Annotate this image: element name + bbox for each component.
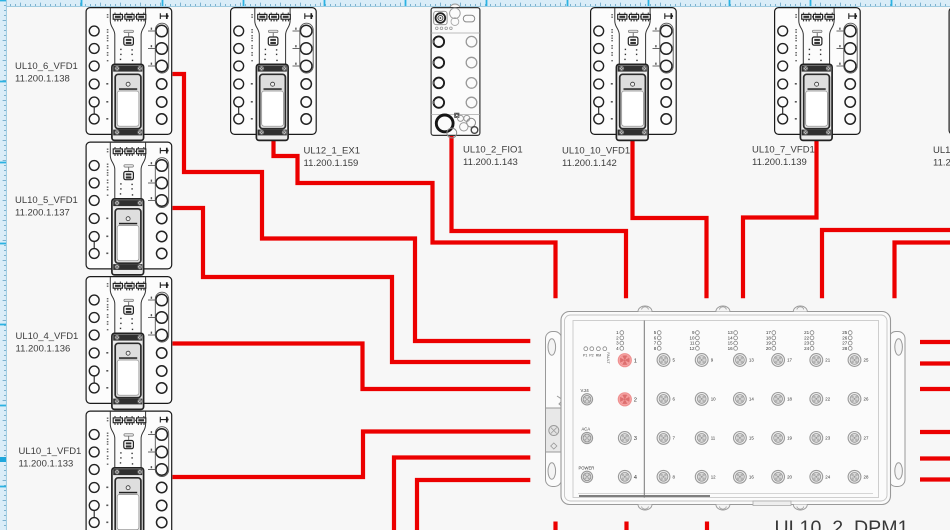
svg-text:20: 20 xyxy=(787,475,792,480)
svg-text:25: 25 xyxy=(842,330,848,335)
svg-text:19: 19 xyxy=(787,436,792,441)
svg-text:23: 23 xyxy=(804,341,810,346)
svg-text:21: 21 xyxy=(804,330,810,335)
svg-text:24: 24 xyxy=(825,475,830,480)
svg-text:UL12_1_EX1: UL12_1_EX1 xyxy=(304,146,361,157)
svg-text:11.200.1.138: 11.200.1.138 xyxy=(15,74,70,85)
svg-text:FAULT: FAULT xyxy=(606,352,610,364)
svg-text:11.200.1.137: 11.200.1.137 xyxy=(15,208,70,219)
svg-text:ACA: ACA xyxy=(582,427,591,432)
svg-text:P1: P1 xyxy=(583,353,587,357)
svg-text:14: 14 xyxy=(749,397,754,402)
svg-text:23: 23 xyxy=(825,436,830,441)
svg-text:UL10_1_VFD1: UL10_1_VFD1 xyxy=(19,446,82,457)
svg-text:1: 1 xyxy=(634,358,637,364)
svg-text:26: 26 xyxy=(864,397,869,402)
svg-text:V.24: V.24 xyxy=(581,388,590,393)
svg-text:15: 15 xyxy=(728,341,734,346)
svg-text:UL10_6_VFD1: UL10_6_VFD1 xyxy=(15,61,78,72)
svg-text:18: 18 xyxy=(766,335,772,340)
svg-text:17: 17 xyxy=(787,358,792,363)
svg-text:11.200.1.140: 11.200.1.140 xyxy=(933,158,950,169)
svg-text:11.200.1.142: 11.200.1.142 xyxy=(562,158,617,169)
svg-text:11: 11 xyxy=(711,436,716,441)
svg-text:POWER: POWER xyxy=(579,465,595,470)
svg-text:P2: P2 xyxy=(589,353,593,357)
svg-text:28: 28 xyxy=(864,475,869,480)
svg-text:15: 15 xyxy=(749,436,754,441)
svg-text:12: 12 xyxy=(689,346,695,351)
svg-text:11: 11 xyxy=(690,341,695,346)
svg-text:25: 25 xyxy=(864,358,869,363)
svg-text:11.200.1.159: 11.200.1.159 xyxy=(304,158,359,169)
svg-text:11.200.1.133: 11.200.1.133 xyxy=(19,459,74,470)
svg-text:22: 22 xyxy=(804,335,810,340)
svg-text:10: 10 xyxy=(689,335,695,340)
svg-text:UL10_5_VFD1: UL10_5_VFD1 xyxy=(15,195,78,206)
svg-text:19: 19 xyxy=(766,341,772,346)
svg-text:21: 21 xyxy=(825,358,830,363)
svg-text:27: 27 xyxy=(842,341,848,346)
svg-text:UL10_2_FIO1: UL10_2_FIO1 xyxy=(463,145,523,156)
svg-text:18: 18 xyxy=(787,397,792,402)
svg-text:RM: RM xyxy=(596,353,602,357)
svg-text:UL10_4_VFD1: UL10_4_VFD1 xyxy=(16,331,79,342)
svg-text:2: 2 xyxy=(634,397,637,403)
svg-text:UL10_10_VFD1: UL10_10_VFD1 xyxy=(562,146,630,157)
svg-text:20: 20 xyxy=(766,346,772,351)
svg-text:UL10_2_DPM1: UL10_2_DPM1 xyxy=(775,517,909,530)
svg-text:13: 13 xyxy=(749,358,754,363)
svg-text:11.200.1.136: 11.200.1.136 xyxy=(16,344,71,355)
svg-text:22: 22 xyxy=(825,397,830,402)
svg-text:3: 3 xyxy=(634,436,637,442)
svg-text:14: 14 xyxy=(728,335,734,340)
svg-text:11.200.1.139: 11.200.1.139 xyxy=(752,157,807,168)
svg-text:11.200.1.143: 11.200.1.143 xyxy=(463,157,518,168)
svg-text:26: 26 xyxy=(842,335,848,340)
svg-text:27: 27 xyxy=(864,436,869,441)
svg-text:UL10_8_VFD1: UL10_8_VFD1 xyxy=(933,145,950,156)
svg-text:24: 24 xyxy=(804,346,810,351)
svg-text:12: 12 xyxy=(711,475,716,480)
svg-text:28: 28 xyxy=(842,346,848,351)
svg-text:UL10_7_VFD1: UL10_7_VFD1 xyxy=(752,145,815,156)
svg-text:17: 17 xyxy=(766,330,772,335)
svg-text:16: 16 xyxy=(728,346,734,351)
svg-text:10: 10 xyxy=(711,397,716,402)
svg-text:13: 13 xyxy=(728,330,734,335)
svg-text:16: 16 xyxy=(749,475,754,480)
